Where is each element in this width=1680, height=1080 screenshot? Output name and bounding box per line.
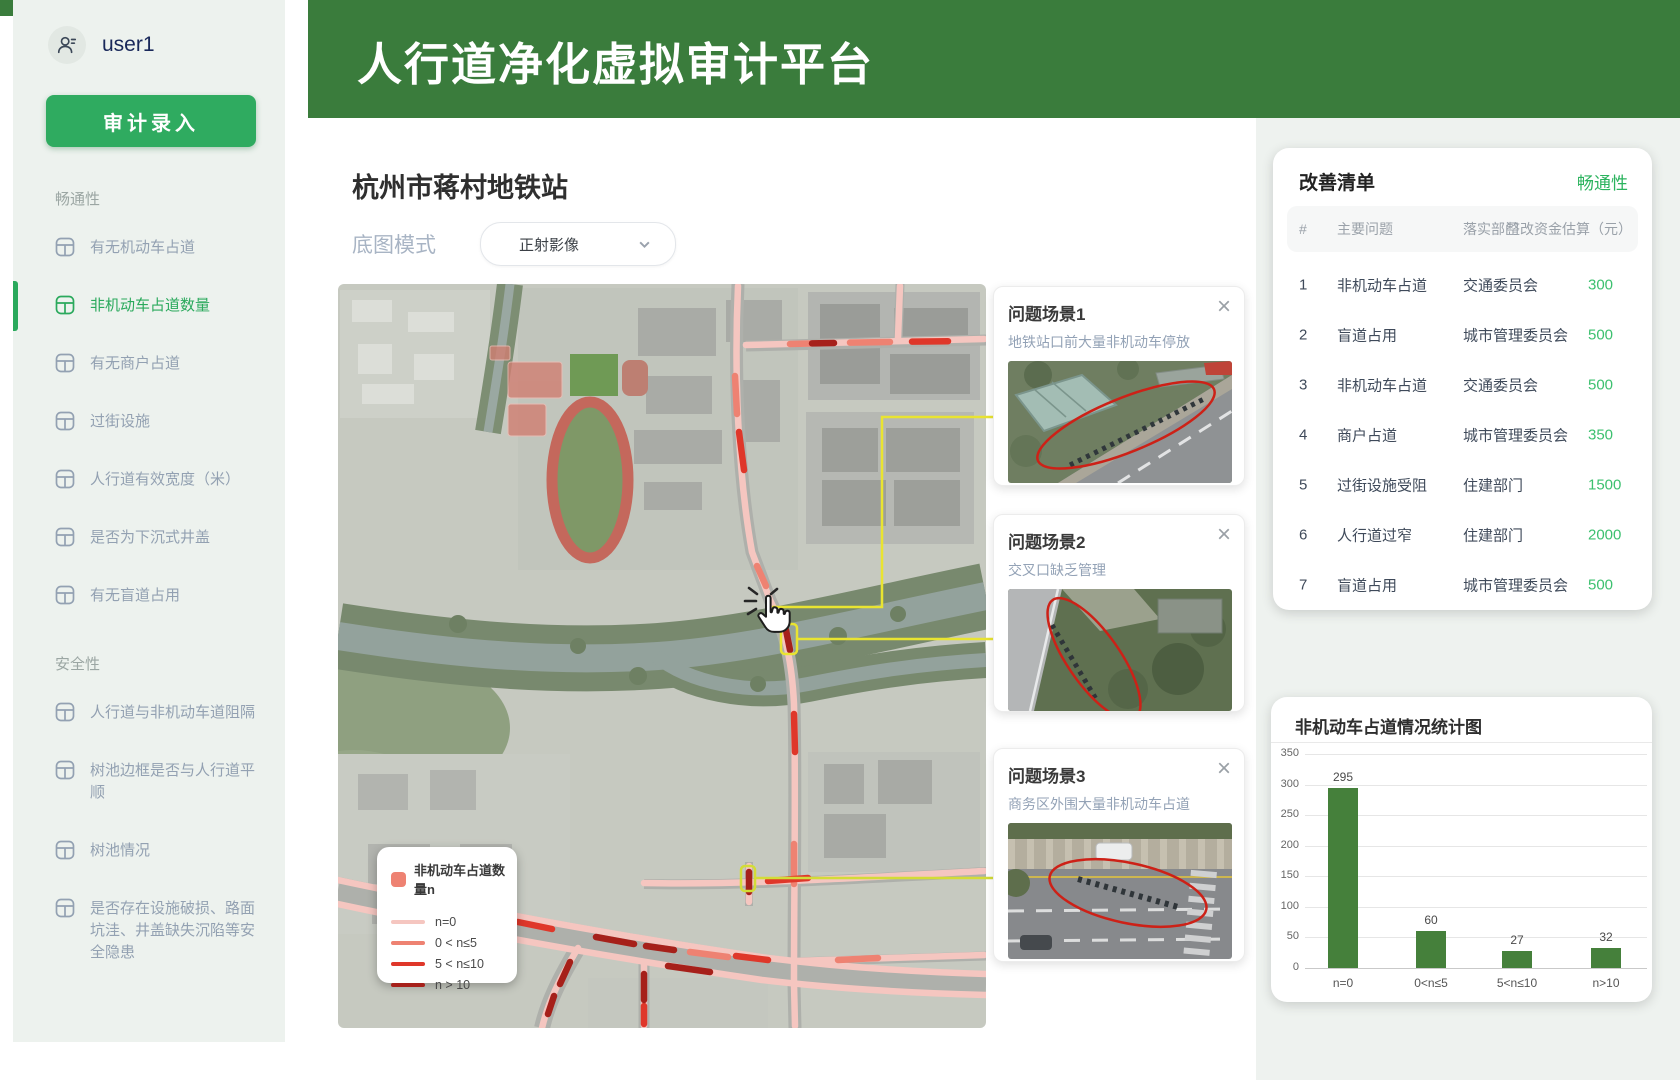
cell-cost: 300 — [1588, 277, 1613, 294]
cell-issue: 盲道占用 — [1337, 325, 1397, 346]
basemap-select[interactable]: 正射影像 — [480, 222, 676, 266]
map-legend: 非机动车占道数量n n=00 < n≤55 < n≤10n > 10 — [377, 847, 517, 983]
table-row[interactable]: 6人行道过窄住建部门2000 — [1287, 510, 1638, 560]
table-row[interactable]: 7盲道占用城市管理委员会500 — [1287, 560, 1638, 610]
sidebar-item[interactable]: 人行道与非机动车道阻隔 — [13, 684, 285, 742]
legend-rows: n=00 < n≤55 < n≤10n > 10 — [391, 913, 517, 993]
close-icon[interactable]: × — [1217, 757, 1231, 781]
cell-no: 1 — [1299, 277, 1307, 294]
scene-photo-business-district — [1008, 823, 1232, 959]
sidebar-item-label: 是否为下沉式井盖 — [90, 527, 210, 549]
legend-label: n=0 — [435, 915, 456, 929]
sidebar-item-label: 树池情况 — [90, 840, 150, 862]
legend-row: n > 10 — [391, 976, 517, 993]
legend-line-sample — [391, 962, 425, 966]
layout-grid-icon — [55, 411, 75, 431]
scene-card-subtitle: 交叉口缺乏管理 — [1008, 560, 1230, 580]
column-header-index: # — [1299, 221, 1307, 237]
cell-no: 7 — [1299, 577, 1307, 594]
cell-issue: 商户占道 — [1337, 425, 1397, 446]
sidebar-section-label: 畅通性 — [55, 188, 285, 209]
sidebar-item[interactable]: 有无盲道占用 — [13, 567, 285, 625]
x-axis-tick: 0<n≤5 — [1389, 976, 1473, 990]
bar-n=0 — [1328, 788, 1358, 968]
cell-cost: 500 — [1588, 327, 1613, 344]
user-avatar-icon — [48, 26, 86, 64]
cell-issue: 非机动车占道 — [1337, 375, 1427, 396]
cell-no: 5 — [1299, 477, 1307, 494]
map-area-title: 杭州市蒋村地铁站 — [352, 166, 568, 205]
cell-issue: 非机动车占道 — [1337, 275, 1427, 296]
sidebar: user1 审计录入 畅通性有无机动车占道非机动车占道数量有无商户占道过街设施人… — [13, 0, 285, 1042]
improvement-list-title: 改善清单 — [1299, 168, 1375, 195]
sidebar-item[interactable]: 树池边框是否与人行道平顺 — [13, 742, 285, 822]
layout-grid-icon — [55, 585, 75, 605]
column-header-cost: 整改资金估算（元） — [1506, 219, 1632, 239]
sidebar-item[interactable]: 人行道有效宽度（米） — [13, 451, 285, 509]
legend-line-sample — [391, 983, 425, 987]
close-icon[interactable]: × — [1217, 295, 1231, 319]
table-row[interactable]: 2盲道占用城市管理委员会500 — [1287, 310, 1638, 360]
sidebar-item[interactable]: 是否存在设施破损、路面坑洼、井盖缺失沉陷等安全隐患 — [13, 880, 285, 982]
basemap-select-value: 正射影像 — [519, 234, 579, 255]
table-row[interactable]: 4商户占道城市管理委员会350 — [1287, 410, 1638, 460]
legend-row: 5 < n≤10 — [391, 955, 517, 972]
cell-no: 4 — [1299, 427, 1307, 444]
legend-row: n=0 — [391, 913, 517, 930]
cell-no: 2 — [1299, 327, 1307, 344]
statistics-chart-card: 非机动车占道情况统计图 050100150200250300350295n=06… — [1271, 697, 1652, 1002]
layout-grid-icon — [55, 840, 75, 860]
layout-grid-icon — [55, 469, 75, 489]
satellite-map[interactable]: 非机动车占道数量n n=00 < n≤55 < n≤10n > 10 — [338, 284, 986, 1028]
stadium-track — [552, 402, 628, 558]
column-header-issue: 主要问题 — [1337, 219, 1393, 239]
cell-issue: 盲道占用 — [1337, 575, 1397, 596]
header-banner: 人行道净化虚拟审计平台 — [308, 0, 1680, 118]
scene-card-subtitle: 商务区外围大量非机动车占道 — [1008, 794, 1230, 814]
sidebar-item-label: 是否存在设施破损、路面坑洼、井盖缺失沉陷等安全隐患 — [90, 898, 267, 964]
sidebar-item-active[interactable]: 非机动车占道数量 — [13, 277, 285, 335]
legend-label: 5 < n≤10 — [435, 957, 484, 971]
gridline — [1305, 968, 1647, 969]
legend-line-sample — [391, 920, 425, 924]
sidebar-item-label: 有无商户占道 — [90, 353, 180, 375]
sidebar-item-label: 树池边框是否与人行道平顺 — [90, 760, 267, 804]
cell-issue: 人行道过窄 — [1337, 525, 1412, 546]
bar-value-label: 27 — [1487, 933, 1547, 947]
y-axis-tick: 350 — [1271, 747, 1299, 759]
table-row[interactable]: 3非机动车占道交通委员会500 — [1287, 360, 1638, 410]
scene-card-title: 问题场景3 — [1008, 762, 1230, 787]
cell-cost: 1500 — [1588, 477, 1621, 494]
sidebar-item[interactable]: 有无商户占道 — [13, 335, 285, 393]
legend-label: n > 10 — [435, 978, 470, 992]
bar-chart-plot: 050100150200250300350295n=0600<n≤5275<n≤… — [1271, 742, 1652, 1003]
y-axis-tick: 300 — [1271, 778, 1299, 790]
layout-grid-icon — [55, 353, 75, 373]
sidebar-item-label: 非机动车占道数量 — [90, 295, 210, 317]
user-row[interactable]: user1 — [48, 26, 155, 64]
x-axis-tick: 5<n≤10 — [1475, 976, 1559, 990]
cell-dept: 城市管理委员会 — [1463, 575, 1568, 596]
legend-line-sample — [391, 941, 425, 945]
cell-cost: 350 — [1588, 427, 1613, 444]
y-axis-tick: 250 — [1271, 808, 1299, 820]
sidebar-item[interactable]: 有无机动车占道 — [13, 219, 285, 277]
chevron-down-icon — [638, 238, 651, 251]
improvement-list-card: 改善清单 畅通性 # 主要问题 落实部门 整改资金估算（元） 1非机动车占道交通… — [1273, 148, 1652, 610]
scene-card-2: 问题场景2 × 交叉口缺乏管理 — [993, 514, 1245, 712]
layout-grid-icon — [55, 760, 75, 780]
chart-title: 非机动车占道情况统计图 — [1295, 713, 1482, 738]
sidebar-item[interactable]: 是否为下沉式井盖 — [13, 509, 285, 567]
cell-cost: 2000 — [1588, 527, 1621, 544]
close-icon[interactable]: × — [1217, 523, 1231, 547]
sidebar-item-label: 有无机动车占道 — [90, 237, 195, 259]
y-axis-tick: 50 — [1271, 930, 1299, 942]
corner-accent — [0, 0, 13, 16]
table-header-row: # 主要问题 落实部门 整改资金估算（元） — [1287, 206, 1638, 252]
gridline — [1305, 785, 1647, 786]
gridline — [1305, 754, 1647, 755]
cell-dept: 住建部门 — [1463, 525, 1523, 546]
bar-value-label: 60 — [1401, 913, 1461, 927]
bar-n>10 — [1591, 948, 1621, 968]
bar-0<n≤5 — [1416, 931, 1446, 968]
legend-swatch-icon — [391, 872, 406, 887]
cell-no: 3 — [1299, 377, 1307, 394]
scene-card-title: 问题场景1 — [1008, 300, 1230, 325]
bar-value-label: 32 — [1576, 930, 1636, 944]
table-body: 1非机动车占道交通委员会3002盲道占用城市管理委员会5003非机动车占道交通委… — [1287, 260, 1638, 610]
sidebar-item-label: 过街设施 — [90, 411, 150, 433]
sidebar-item[interactable]: 树池情况 — [13, 822, 285, 880]
layout-grid-icon — [55, 527, 75, 547]
cell-dept: 城市管理委员会 — [1463, 325, 1568, 346]
scene-card-3: 问题场景3 × 商务区外围大量非机动车占道 — [993, 748, 1245, 962]
sidebar-nav: 畅通性有无机动车占道非机动车占道数量有无商户占道过街设施人行道有效宽度（米）是否… — [13, 160, 285, 982]
cell-issue: 过街设施受阻 — [1337, 475, 1427, 496]
sidebar-item[interactable]: 过街设施 — [13, 393, 285, 451]
legend-label: 0 < n≤5 — [435, 936, 477, 950]
legend-row: 0 < n≤5 — [391, 934, 517, 951]
layout-grid-icon — [55, 295, 75, 315]
scene-card-title: 问题场景2 — [1008, 528, 1230, 553]
app-window: 人行道净化虚拟审计平台 user1 审计录入 畅通性有无机动车占道非机动车占道数… — [0, 0, 1680, 1080]
basemap-mode-label: 底图模式 — [352, 229, 436, 259]
category-tag-link[interactable]: 畅通性 — [1577, 169, 1628, 194]
sidebar-section-label: 安全性 — [55, 653, 285, 674]
sidebar-item-label: 人行道有效宽度（米） — [90, 469, 240, 491]
bar-5<n≤10 — [1502, 951, 1532, 968]
bar-value-label: 295 — [1313, 770, 1373, 784]
layout-grid-icon — [55, 898, 75, 918]
legend-title: 非机动车占道数量n — [414, 860, 517, 898]
scene-card-subtitle: 地铁站口前大量非机动车停放 — [1008, 332, 1230, 352]
y-axis-tick: 0 — [1271, 961, 1299, 973]
cell-dept: 交通委员会 — [1463, 375, 1538, 396]
y-axis-tick: 200 — [1271, 839, 1299, 851]
table-row[interactable]: 5过街设施受阻住建部门1500 — [1287, 460, 1638, 510]
cell-dept: 住建部门 — [1463, 475, 1523, 496]
layout-grid-icon — [55, 237, 75, 257]
cell-dept: 交通委员会 — [1463, 275, 1538, 296]
layout-grid-icon — [55, 702, 75, 722]
scene-photo-intersection — [1008, 589, 1232, 711]
cell-cost: 500 — [1588, 577, 1613, 594]
y-axis-tick: 100 — [1271, 900, 1299, 912]
x-axis-tick: n=0 — [1301, 976, 1385, 990]
username: user1 — [102, 33, 155, 57]
y-axis-tick: 150 — [1271, 869, 1299, 881]
x-axis-tick: n>10 — [1564, 976, 1648, 990]
cell-dept: 城市管理委员会 — [1463, 425, 1568, 446]
table-row[interactable]: 1非机动车占道交通委员会300 — [1287, 260, 1638, 310]
scene-card-1: 问题场景1 × 地铁站口前大量非机动车停放 — [993, 286, 1245, 486]
scene-photo-metro-entrance — [1008, 361, 1232, 483]
cell-cost: 500 — [1588, 377, 1613, 394]
sidebar-item-label: 有无盲道占用 — [90, 585, 180, 607]
sidebar-item-label: 人行道与非机动车道阻隔 — [90, 702, 255, 724]
page-title: 人行道净化虚拟审计平台 — [308, 0, 1680, 93]
audit-entry-button[interactable]: 审计录入 — [46, 95, 256, 147]
cell-no: 6 — [1299, 527, 1307, 544]
